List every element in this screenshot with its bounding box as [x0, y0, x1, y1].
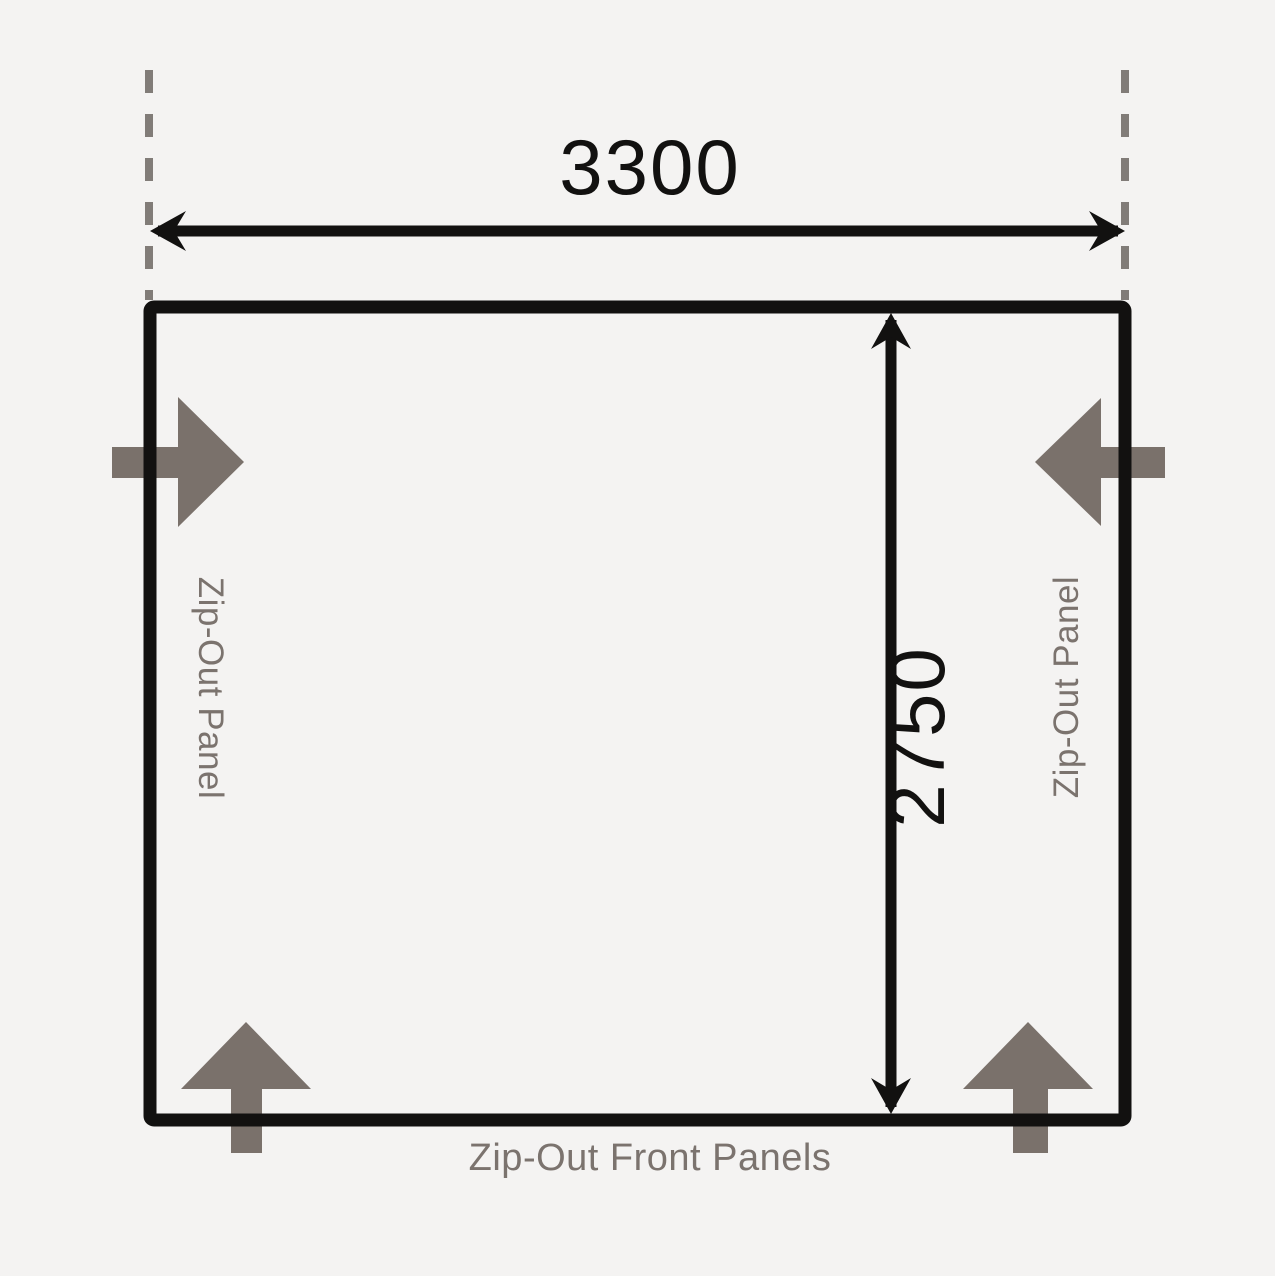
left-zip-out-panel-label: Zip-Out Panel	[191, 577, 230, 799]
width-dimension-value: 3300	[559, 123, 741, 211]
front-zip-out-panels-label: Zip-Out Front Panels	[469, 1137, 832, 1179]
depth-dimension-value: 2750	[873, 646, 961, 828]
awning-floorplan-diagram: 3300 2750 Zip-Out Panel Zip-Out Panel Zi…	[0, 0, 1275, 1276]
right-zip-out-panel-label: Zip-Out Panel	[1047, 576, 1086, 798]
awning-floorplan-page: 3300 2750 Zip-Out Panel Zip-Out Panel Zi…	[0, 0, 1275, 1276]
